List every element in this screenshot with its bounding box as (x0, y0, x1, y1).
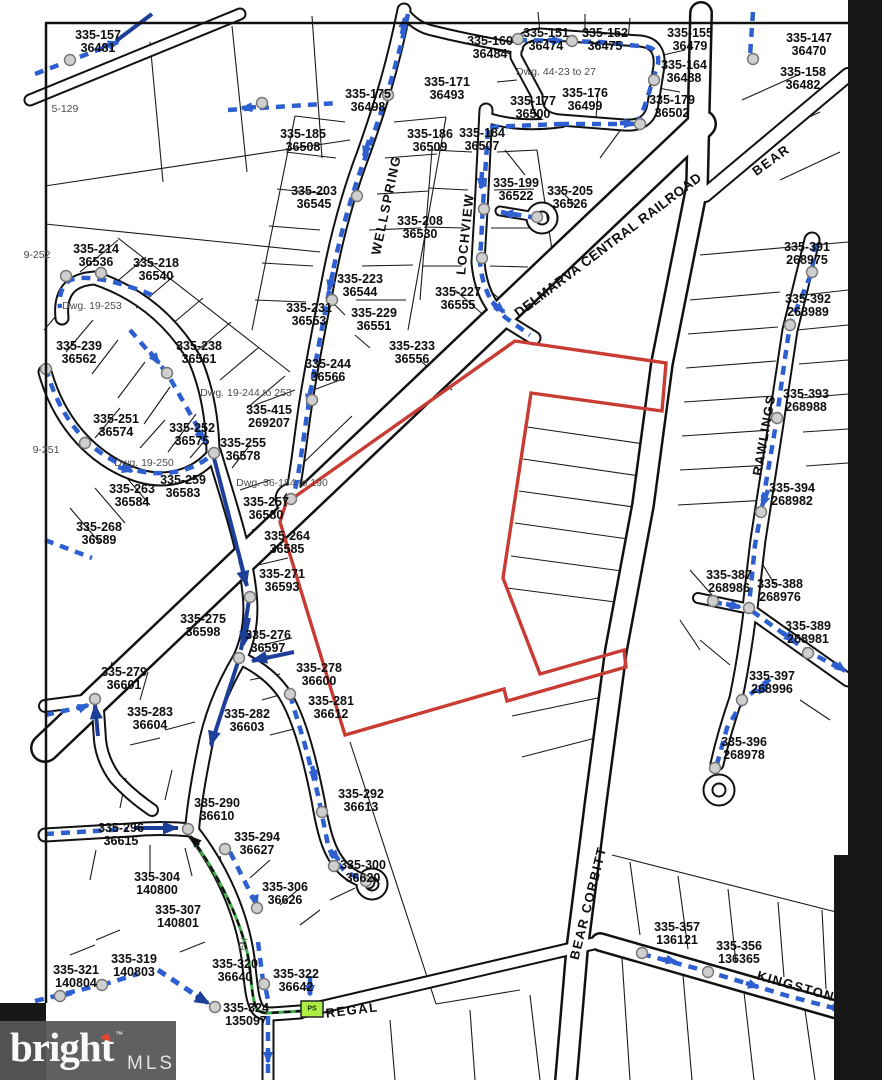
parcel-label: 335-28336604 (127, 706, 173, 732)
parcel-label: 335-304140800 (134, 871, 180, 897)
parcel-label: 335-391268975 (784, 241, 830, 267)
dwg-note: Dwg. 19-244 to 253 (200, 387, 292, 399)
parcel-label: 335-20536526 (547, 185, 593, 211)
parcel-label: 335-388268976 (757, 578, 803, 604)
parcel-label: 335-17536498 (345, 88, 391, 114)
parcel-label: 335-387268986 (706, 569, 752, 595)
parcel-label: 335-15836482 (780, 66, 826, 92)
parcel-label: 335-28236603 (224, 708, 270, 734)
parcel-label: 335-22936551 (351, 307, 397, 333)
parcel-label: 335-16036484 (467, 35, 513, 61)
parcel-label: 335-30036620 (340, 859, 386, 885)
parcel-label: 335-321140804 (53, 964, 99, 990)
parcel-label: 335-27836600 (296, 662, 342, 688)
parcel-label: 335-15736481 (75, 29, 121, 55)
parcel-label: 335-319140803 (111, 953, 157, 979)
parcel-label: 335-415269207 (246, 404, 292, 430)
parcel-label: 335-356136365 (716, 940, 762, 966)
parcel-label: 335-27636597 (245, 629, 291, 655)
parcel-label: 335-19936522 (493, 177, 539, 203)
street-label-bear: BEAR (749, 141, 792, 178)
parcel-label: 335-29436627 (234, 831, 280, 857)
trademark-symbol: ™ (115, 1030, 123, 1039)
street-label-delmarva-central-railroad: DELMARVA CENTRAL RAILROAD (512, 170, 705, 321)
plat-map: 335-15736481 335-16036484 335-15136474 3… (0, 0, 882, 1080)
dwg-note: Dwg. 44-23 to 27 (516, 66, 596, 78)
parcel-label: 335-14736470 (786, 32, 832, 58)
parcel-label: 335-17936502 (649, 94, 695, 120)
street-label-bear-corbitt: BEAR CORBITT (567, 845, 610, 961)
dwg-note: Dwg. 36-184 to 190 (236, 477, 328, 489)
parcel-label: 335-22736555 (435, 286, 481, 312)
parcel-label: 335-29036610 (194, 797, 240, 823)
parcel-label: 335-23936562 (56, 340, 102, 366)
parcel-label: 335-18636509 (407, 128, 453, 154)
parcel-label: 335-324135097 (223, 1002, 269, 1028)
parcel-label: 335-18536508 (280, 128, 326, 154)
parcel-label: 335-394268982 (769, 482, 815, 508)
parcel-label: 335-29636615 (98, 822, 144, 848)
brightmls-wordmark: bright (10, 1023, 113, 1071)
parcel-label: 335-17736500 (510, 95, 556, 121)
parcel-label: 335-25536578 (220, 437, 266, 463)
parcel-label: 335-23336556 (389, 340, 435, 366)
label-layer: 335-15736481 335-16036484 335-15136474 3… (0, 0, 882, 1080)
parcel-label: 335-25936583 (160, 474, 206, 500)
parcel-label: 335-27536598 (180, 613, 226, 639)
parcel-label: 335-26836589 (76, 521, 122, 547)
parcel-label: 335-25736580 (243, 496, 289, 522)
parcel-label: 335-17636499 (562, 87, 608, 113)
brightmls-logo: bright ™ MLS (0, 1021, 176, 1080)
parcel-label: 335-28136612 (308, 695, 354, 721)
dwg-note: Dwg. 19-250 (114, 457, 174, 469)
street-label-regal: REGAL (325, 999, 379, 1020)
parcel-label: 335-18436507 (459, 127, 505, 153)
parcel-label: 335-32236642 (273, 968, 319, 994)
parcel-label: 335-15136474 (523, 27, 569, 53)
parcel-label: 335-29236613 (338, 788, 384, 814)
parcel-label: 335-25236575 (169, 422, 215, 448)
parcel-label: 335-307140801 (155, 904, 201, 930)
parcel-label: 335-396268978 (721, 736, 767, 762)
parcel-label: 335-15536479 (667, 27, 713, 53)
parcel-label: 335-20836530 (397, 215, 443, 241)
parcel-label: 335-26436585 (264, 530, 310, 556)
force-main-label: FM (236, 936, 249, 951)
parcel-label: 335-397268996 (749, 670, 795, 696)
parcel-label: 335-15236475 (582, 27, 628, 53)
parcel-label: 335-357136121 (654, 921, 700, 947)
parcel-label: 335-389268981 (785, 620, 831, 646)
parcel-label: 335-27136593 (259, 568, 305, 594)
parcel-label: 335-25136574 (93, 413, 139, 439)
parcel-label: 335-21436536 (73, 243, 119, 269)
parcel-label: 335-24436566 (305, 358, 351, 384)
parcel-label: 335-393268988 (783, 388, 829, 414)
parcel-label: 335-23136553 (286, 302, 332, 328)
street-label-lochview: LOCHVIEW (453, 192, 476, 275)
dwg-note: 9-252 (24, 249, 51, 261)
parcel-label: 335-22336544 (337, 273, 383, 299)
dwg-note: 9-251 (33, 444, 60, 456)
parcel-label: 335-20336545 (291, 185, 337, 211)
dwg-note: . 5-129 (46, 103, 79, 115)
parcel-label: 335-23836561 (176, 340, 222, 366)
parcel-label: 335-392268989 (785, 293, 831, 319)
brightmls-mls-text: MLS (127, 1053, 175, 1075)
parcel-label: 335-30636626 (262, 881, 308, 907)
parcel-label: 335-32036640 (212, 958, 258, 984)
street-label-rawlings: RAWLINGS (749, 393, 778, 476)
parcel-label: 335-17136493 (424, 76, 470, 102)
parcel-label: 335-26336584 (109, 483, 155, 509)
pump-station-label: PS (307, 1006, 316, 1013)
street-label-kingston: KINGSTON (755, 968, 836, 1005)
parcel-label: 335-16436488 (661, 59, 707, 85)
dwg-note: Dwg. 19-253 (62, 300, 122, 312)
parcel-label: 335-27936601 (101, 666, 147, 692)
parcel-label: 335-21836540 (133, 257, 179, 283)
